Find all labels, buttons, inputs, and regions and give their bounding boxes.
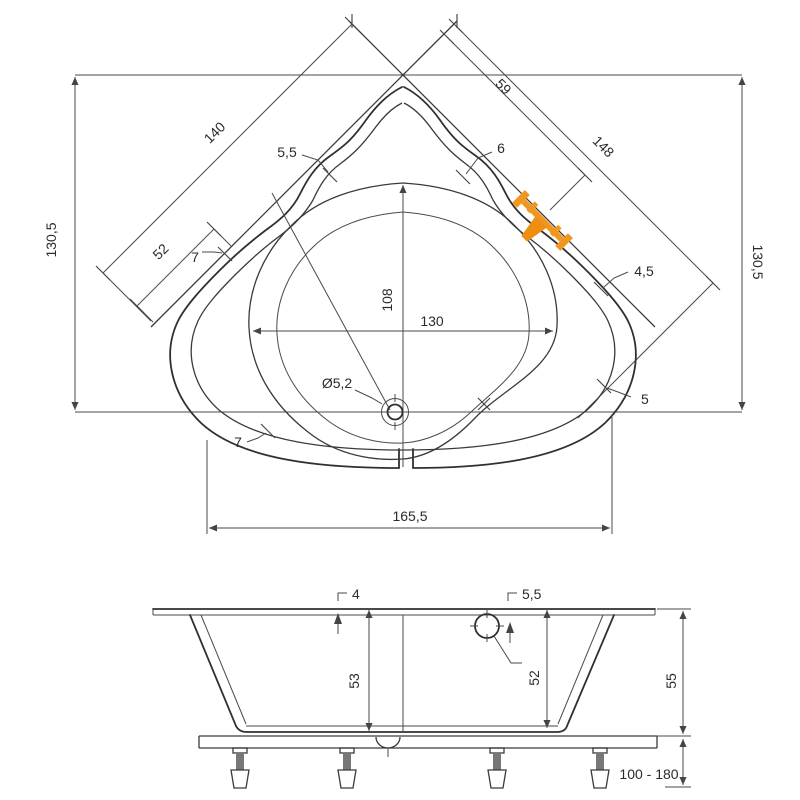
drain-leader [355,390,382,404]
dim-label-52: 52 [149,240,171,262]
dim-label-148: 148 [590,133,618,161]
bathtub-technical-drawing: 130,5 130,5 140 52 [0,0,800,800]
dim-label-5-5: 5,5 [277,144,297,160]
dim-label-7-left: 7 [191,249,199,265]
dim-label-130-5-left: 130,5 [43,222,59,257]
dim-label-108: 108 [379,288,395,312]
drawing-canvas: 130,5 130,5 140 52 [0,0,800,800]
dim-label-6: 6 [497,140,505,156]
dim-label-4: 4 [352,586,360,602]
dim-label-53: 53 [346,673,362,689]
dimension-140 [96,17,359,321]
side-body-inner-lines [201,615,603,726]
dim-label-4-5: 4,5 [634,263,654,279]
dimension-148 [449,19,720,418]
dim-label-140: 140 [201,118,229,146]
dimension-4 [334,593,347,634]
leg [338,748,356,788]
leg [231,748,249,788]
dim-label-leg-range: 100 - 180 [619,766,678,782]
leader-6 [456,152,492,184]
dim-label-7-bottom: 7 [234,434,242,450]
dim-label-drain: Ø5,2 [322,375,353,391]
dim-label-5-right: 5 [641,391,649,407]
dimension-5-5-side [506,593,517,643]
overflow-icon [470,610,522,663]
leg [591,748,609,788]
leg [488,748,506,788]
dim-label-165-5: 165,5 [392,508,427,524]
dimension-55 [657,609,691,736]
dimension-59 [440,30,592,210]
dim-label-59: 59 [492,75,514,97]
side-view: 4 5,5 53 52 55 [153,586,691,788]
mounting-frame [199,736,657,757]
side-rim [153,609,655,615]
dim-label-55: 55 [663,673,679,689]
dim-label-52-side: 52 [526,670,542,686]
dimension-52 [130,222,231,322]
top-view: 130,5 130,5 140 52 [43,14,766,534]
side-body-outline [190,615,614,732]
dim-label-130: 130 [420,313,444,329]
dim-label-5-5-side: 5,5 [522,586,542,602]
overall-dimension-box [75,75,742,412]
leader-7-left [202,247,232,261]
dim-label-130-5-right: 130,5 [750,244,766,279]
